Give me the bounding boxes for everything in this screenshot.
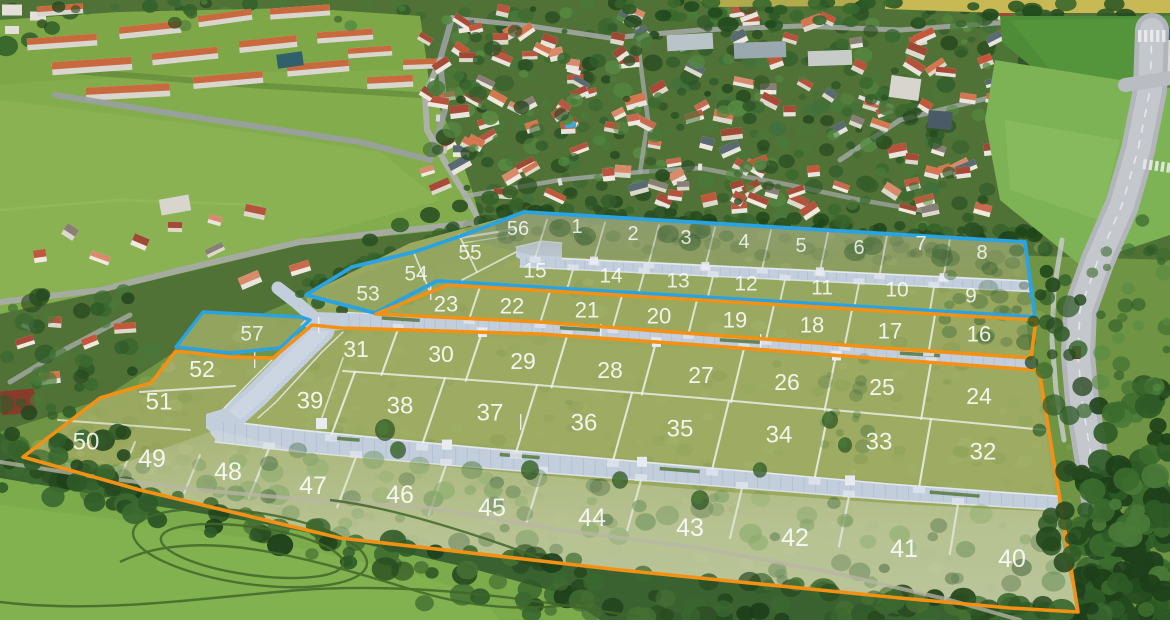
svg-text:50: 50 — [73, 428, 100, 455]
svg-text:53: 53 — [356, 282, 379, 305]
svg-text:7: 7 — [915, 233, 926, 255]
svg-text:2: 2 — [627, 223, 638, 245]
svg-text:19: 19 — [723, 308, 747, 333]
svg-text:15: 15 — [523, 259, 546, 282]
svg-text:22: 22 — [500, 294, 524, 319]
svg-text:17: 17 — [878, 319, 902, 344]
svg-text:21: 21 — [575, 298, 599, 323]
svg-text:3: 3 — [680, 227, 691, 249]
svg-text:13: 13 — [666, 269, 689, 292]
svg-text:26: 26 — [774, 369, 800, 395]
svg-text:14: 14 — [599, 264, 623, 287]
svg-text:56: 56 — [507, 218, 529, 240]
svg-text:55: 55 — [458, 241, 481, 264]
svg-text:38: 38 — [387, 392, 414, 419]
svg-text:12: 12 — [734, 272, 757, 295]
svg-text:9: 9 — [965, 284, 977, 307]
svg-text:47: 47 — [299, 472, 327, 500]
svg-text:16: 16 — [967, 322, 991, 347]
svg-text:39: 39 — [297, 387, 324, 414]
svg-text:51: 51 — [146, 388, 173, 415]
svg-text:46: 46 — [386, 481, 414, 509]
svg-text:41: 41 — [890, 535, 918, 563]
svg-text:10: 10 — [885, 278, 908, 301]
svg-text:27: 27 — [688, 362, 714, 388]
svg-text:36: 36 — [571, 409, 598, 436]
svg-text:4: 4 — [738, 231, 749, 253]
svg-text:44: 44 — [578, 504, 606, 532]
svg-text:30: 30 — [428, 341, 454, 367]
svg-text:31: 31 — [343, 336, 369, 362]
svg-text:1: 1 — [571, 216, 582, 238]
svg-text:54: 54 — [404, 262, 428, 285]
svg-text:20: 20 — [647, 304, 671, 329]
svg-text:18: 18 — [800, 313, 824, 338]
svg-text:25: 25 — [869, 374, 895, 400]
svg-text:6: 6 — [853, 237, 864, 259]
svg-text:32: 32 — [970, 438, 997, 465]
svg-text:45: 45 — [478, 494, 506, 522]
svg-text:43: 43 — [676, 514, 704, 542]
svg-text:42: 42 — [781, 524, 809, 552]
svg-text:23: 23 — [434, 292, 458, 317]
svg-text:29: 29 — [510, 348, 536, 374]
svg-text:24: 24 — [966, 383, 992, 409]
svg-text:57: 57 — [240, 322, 263, 345]
svg-text:8: 8 — [976, 242, 987, 264]
svg-text:28: 28 — [597, 357, 623, 383]
svg-text:35: 35 — [667, 415, 694, 442]
svg-text:40: 40 — [998, 545, 1026, 573]
svg-text:34: 34 — [766, 421, 793, 448]
svg-text:48: 48 — [214, 458, 242, 486]
svg-text:5: 5 — [795, 235, 806, 257]
svg-text:52: 52 — [189, 356, 215, 382]
svg-text:37: 37 — [477, 399, 504, 426]
svg-text:49: 49 — [138, 445, 166, 473]
svg-text:33: 33 — [866, 428, 893, 455]
svg-text:11: 11 — [811, 276, 833, 299]
